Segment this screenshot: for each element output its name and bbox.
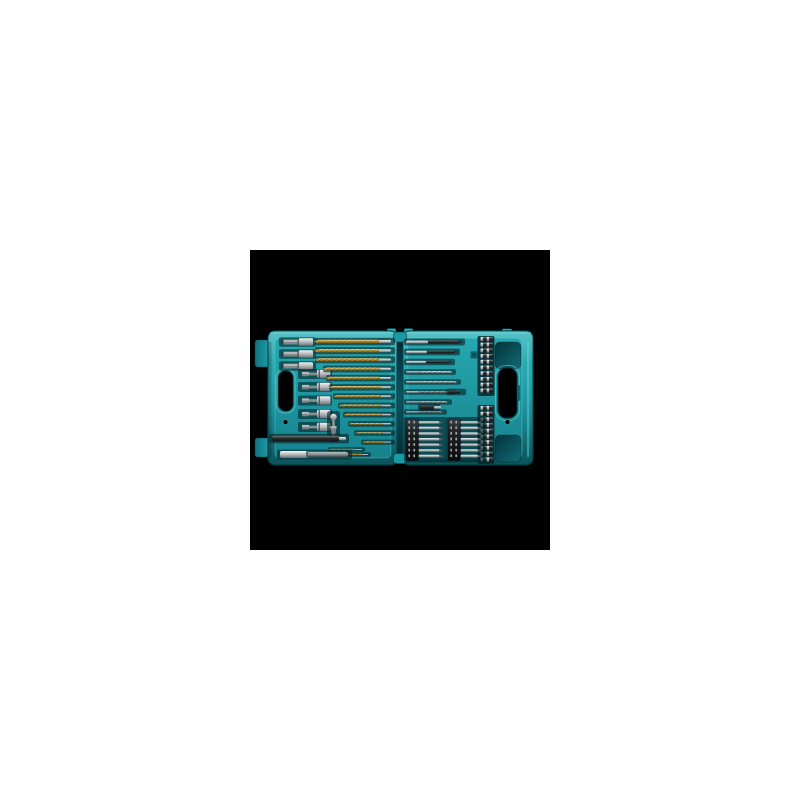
bit-holder-bar [269,434,349,444]
right-pocket-top [495,342,521,369]
right-edge-highlight [527,342,529,457]
bit-set-case-illustration [250,250,550,550]
case-right-top-rim [405,332,531,333]
latch-tabs [255,340,269,457]
brand-emblem [470,351,478,359]
latch-tab-bottom [255,438,269,457]
magnetic-bit-holder [277,450,352,460]
handle-cutout [498,368,517,418]
left-grip-cutout [279,371,294,411]
left-screw-hole [283,420,288,425]
latch-tab-top [255,340,269,367]
right-pocket-bottom [495,435,521,462]
right-screw-hole [505,420,510,425]
screwdriver-bit-strip-right [446,417,485,463]
screwdriver-bit-strip-left [404,417,447,463]
case-left-top-rim [270,332,395,333]
socket-adapters [279,337,316,371]
page-background: { "page": { "background": "#ffffff" }, "… [0,0,800,800]
product-image [250,250,550,550]
edge-grip-notch [517,385,520,401]
